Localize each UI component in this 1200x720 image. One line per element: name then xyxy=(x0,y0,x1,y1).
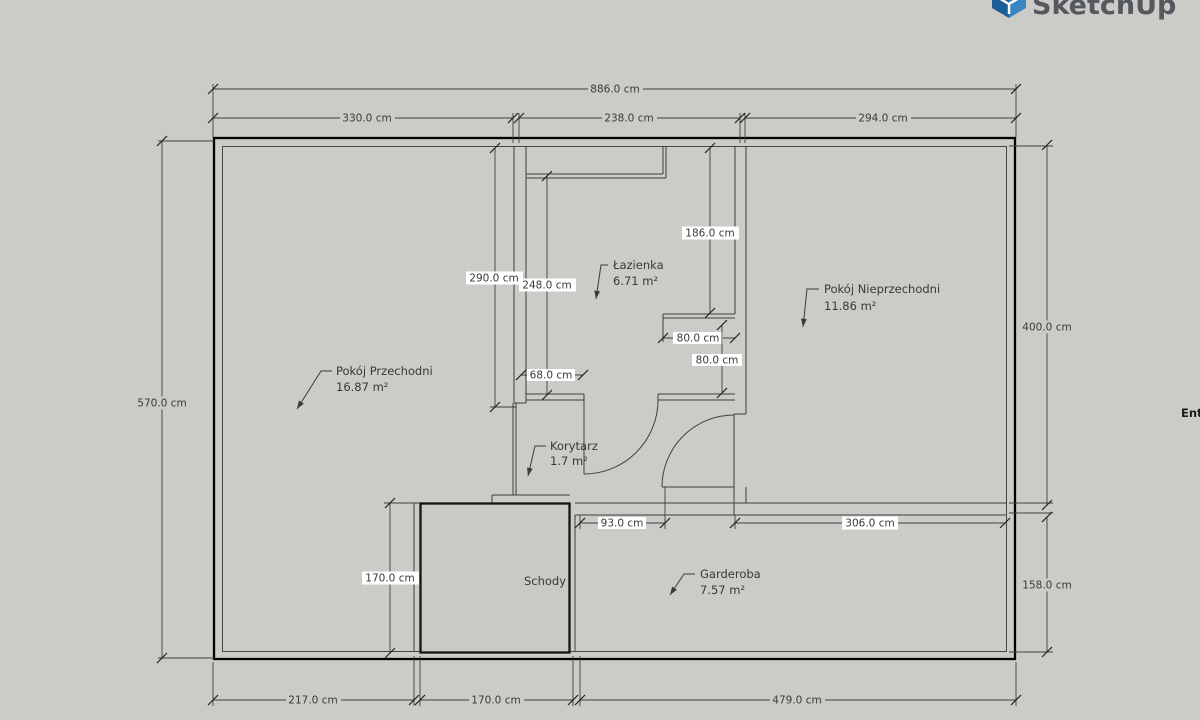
dim-label-right-upper: 400.0 cm xyxy=(1022,322,1071,334)
sketchup-logo-text: SketchUp xyxy=(1032,0,1176,21)
dim-label-overall-width: 886.0 cm xyxy=(590,84,639,96)
dim-label-garderoba-door: 93.0 cm xyxy=(601,518,644,530)
room-area-lazienka: 6.71 m² xyxy=(613,274,658,288)
dim-label-przechodni-east: 290.0 cm xyxy=(469,273,518,285)
dim-label-bottom-right: 479.0 cm xyxy=(772,695,821,707)
dim-label-niche-height: 80.0 cm xyxy=(696,355,739,367)
dim-label-top-mid: 238.0 cm xyxy=(604,113,653,125)
dim-label-top-left: 330.0 cm xyxy=(342,113,391,125)
drawing-viewport[interactable]: 886.0 cm 330.0 cm 238.0 cm 294.0 cm 570.… xyxy=(0,0,1200,720)
dim-label-bottom-mid: 170.0 cm xyxy=(471,695,520,707)
sketchup-window: 886.0 cm 330.0 cm 238.0 cm 294.0 cm 570.… xyxy=(0,0,1200,720)
room-name-przechodni: Pokój Przechodni xyxy=(336,364,433,378)
dim-label-bottom-left: 217.0 cm xyxy=(288,695,337,707)
room-name-nieprzechodni: Pokój Nieprzechodni xyxy=(824,282,940,296)
dim-label-overall-height: 570.0 cm xyxy=(137,398,186,410)
room-name-schody: Schody xyxy=(524,574,566,588)
room-area-korytarz: 1.7 m² xyxy=(550,454,588,468)
dim-label-garderoba-width: 306.0 cm xyxy=(845,518,894,530)
dim-label-lazienka-east: 186.0 cm xyxy=(685,228,734,240)
room-name-korytarz: Korytarz xyxy=(550,439,598,453)
dim-label-lazienka-inner: 248.0 cm xyxy=(522,280,571,292)
room-area-nieprzechodni: 11.86 m² xyxy=(824,299,876,313)
panel-title-fragment: Ent xyxy=(1181,406,1200,420)
room-label-schody: Schody xyxy=(524,574,566,588)
dim-label-top-right: 294.0 cm xyxy=(858,113,907,125)
dim-label-right-lower: 158.0 cm xyxy=(1022,580,1071,592)
dim-label-stairs-height: 170.0 cm xyxy=(365,573,414,585)
dim-label-niche-width: 80.0 cm xyxy=(677,333,720,345)
room-name-lazienka: Łazienka xyxy=(612,258,664,272)
room-name-garderoba: Garderoba xyxy=(700,567,761,581)
dim-label-bath-door: 68.0 cm xyxy=(530,370,573,382)
room-area-garderoba: 7.57 m² xyxy=(700,583,745,597)
canvas-background xyxy=(0,0,1200,720)
room-area-przechodni: 16.87 m² xyxy=(336,380,388,394)
